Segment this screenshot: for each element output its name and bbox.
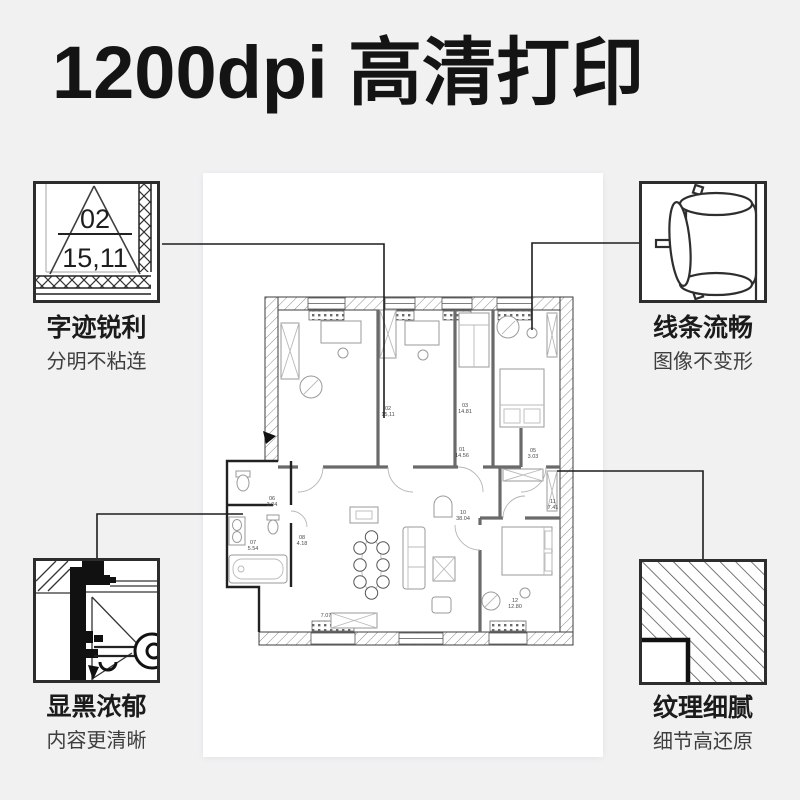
feature-subtitle: 内容更清晰 bbox=[13, 729, 180, 753]
living-room-furniture bbox=[331, 496, 455, 628]
bedroom-furniture bbox=[482, 469, 557, 610]
detail-number-text: 02 bbox=[80, 204, 110, 234]
wall-section-detail-icon bbox=[36, 561, 157, 680]
room-label: 7.07 bbox=[321, 613, 332, 619]
feature-title: 线条流畅 bbox=[619, 313, 787, 343]
upper-rooms-furniture bbox=[281, 310, 557, 427]
callout-box-line-detail bbox=[639, 181, 767, 303]
room-label: 7.41 bbox=[548, 505, 559, 511]
hatch-texture-icon bbox=[642, 562, 764, 682]
callout-box-text-detail: 02 15,11 bbox=[33, 181, 160, 303]
room-label: 3.04 bbox=[267, 502, 278, 508]
feature-rich-black: 显黑浓郁 内容更清晰 bbox=[13, 692, 180, 753]
room-label: 4.18 bbox=[297, 541, 308, 547]
callout-box-texture-detail bbox=[639, 559, 767, 685]
feature-title: 纹理细腻 bbox=[619, 693, 787, 723]
room-label: 38.04 bbox=[456, 516, 470, 522]
room-label: 12.80 bbox=[508, 604, 522, 610]
promo-canvas: 1200dpi 高清打印 bbox=[0, 0, 800, 800]
room-label: 5.54 bbox=[248, 546, 259, 552]
feature-smooth-lines: 线条流畅 图像不变形 bbox=[619, 313, 787, 374]
feature-title: 字迹锐利 bbox=[13, 313, 180, 343]
feature-subtitle: 细节高还原 bbox=[619, 730, 787, 754]
room-label: 3.03 bbox=[528, 454, 539, 460]
floor-plan-svg: 02 15,11 03 14.81 01 14.56 05 3.03 11 7.… bbox=[203, 173, 603, 757]
room-label: 14.81 bbox=[458, 409, 472, 415]
callout-box-black-detail bbox=[33, 558, 160, 683]
magnified-room-label-icon: 02 15,11 bbox=[36, 184, 157, 300]
feature-fine-texture: 纹理细腻 细节高还原 bbox=[619, 693, 787, 754]
floor-plan-page: 02 15,11 03 14.81 01 14.56 05 3.03 11 7.… bbox=[203, 173, 603, 757]
page-title: 1200dpi 高清打印 bbox=[52, 30, 772, 115]
feature-title: 显黑浓郁 bbox=[13, 692, 180, 722]
room-label: 14.56 bbox=[455, 453, 469, 459]
detail-value-text: 15,11 bbox=[62, 243, 128, 273]
bathroom-fixtures bbox=[229, 471, 287, 583]
feature-subtitle: 图像不变形 bbox=[619, 350, 787, 374]
bathroom-walls bbox=[227, 461, 291, 632]
room-label: 15,11 bbox=[381, 412, 394, 418]
armchair-top-view-icon bbox=[642, 184, 764, 300]
feature-text-sharpness: 字迹锐利 分明不粘连 bbox=[13, 313, 180, 374]
feature-subtitle: 分明不粘连 bbox=[13, 350, 180, 374]
